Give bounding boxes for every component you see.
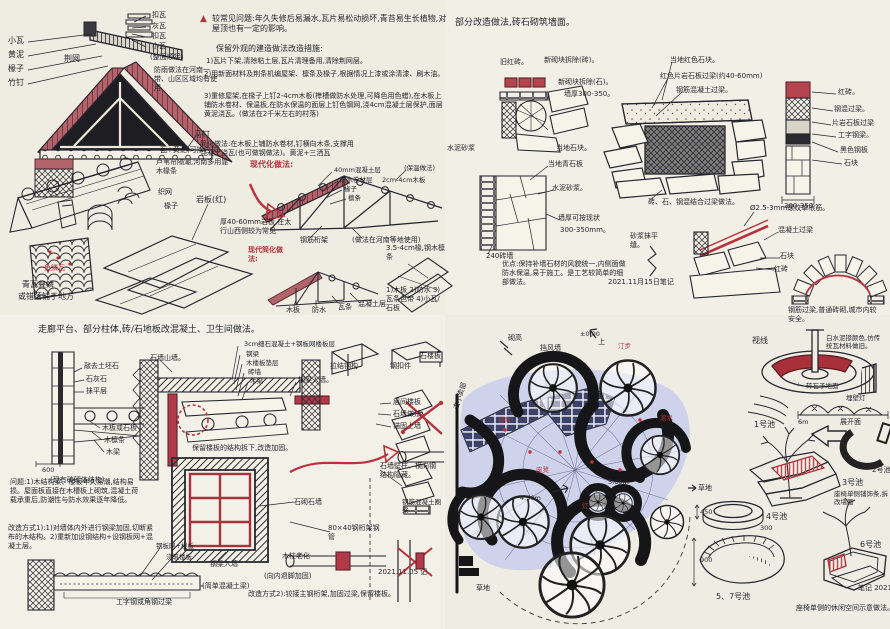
bl-heading: 走廊平台、部分柱体,砖/石地板改混凝土、卫生间做法。	[38, 325, 260, 337]
label-pm0: ±0.00	[580, 330, 600, 338]
label-maideng: 埋壁灯	[846, 394, 866, 402]
label-t2c: 瓦条	[338, 303, 352, 312]
label-jiuhong: 旧红砖。	[500, 58, 528, 67]
label-tingbu-red: 汀步	[618, 342, 631, 350]
label-top2: 钢梁	[246, 350, 259, 358]
label-heise: 黑色钢板	[840, 146, 868, 155]
label-pianyan2: 片岩石板过梁	[832, 119, 874, 128]
label-t1f: (保温做法)	[404, 164, 435, 172]
label-shiqi2: 石砌石墙	[294, 498, 322, 507]
landscape-plan-drawing	[452, 329, 890, 624]
label-top4: 砖墙	[248, 368, 261, 376]
label-huangni: 黄泥	[8, 50, 24, 60]
label-m6: 6m	[798, 418, 808, 426]
label-t1e: 檩条	[348, 194, 361, 202]
label-shajiang: 砂浆抹平缝。	[630, 232, 666, 250]
label-shunjie: (整面顺接)	[150, 53, 183, 62]
label-zhiwang: 织网	[158, 188, 172, 197]
label-luowen: Ø2.5-3mm螺纹单根筋。	[750, 204, 829, 213]
label-xiaowa2: 小瓦	[152, 42, 166, 51]
label-t2a: 木板	[286, 306, 300, 315]
bl-gaizao-note: 改造方式1):1)对墙体内外进行钢梁加固,切断紧布的木结构。2)重新加设钢结构+…	[8, 524, 158, 551]
label-taijie-red: 台阶	[498, 416, 511, 424]
label-xiandai-red: 现代化做法:	[250, 160, 293, 170]
label-suishi: 碎石子地面	[806, 382, 839, 390]
label-dangdi-h: 当地红色石块。	[670, 56, 719, 65]
label-muliang: 木梁	[106, 448, 120, 457]
bl-wenti-note: 问题:1)木结构梁、楼板年久易潮,结构易损。屋面板直接在木槽板上砌筑,混凝土荷载…	[10, 478, 142, 505]
label-xinqi-z: 新砌块拆除(砖)。	[544, 56, 598, 65]
label-chi3: 3号池	[842, 478, 863, 488]
label-yanban-note: 厚40-60mm岩板,在太行山西侧较为常见	[220, 218, 294, 236]
label-t1a: 40mm混凝土层	[334, 166, 381, 174]
label-qiaoqu: 敲去土坯石	[84, 362, 119, 371]
label-r3: 锚固上墙	[393, 422, 421, 431]
label-chuanzi: 椽子	[8, 64, 24, 74]
label-top1: 3cm细石混凝土+钢板网楼板层	[244, 340, 335, 348]
label-gunshui-red: 滚水	[660, 414, 673, 422]
tl-heading: 较常见问题:年久失修后易漏水,瓦片易松动损坏,青苔易生长植物,对屋顶也有一定的影…	[212, 14, 448, 35]
label-m45: 4.50m	[520, 494, 541, 502]
label-ghj: 80×40钢桁架钢管	[328, 524, 384, 542]
label-m5: 5.00m	[608, 478, 629, 486]
tl-item-1: 1)瓦片下架,清除粘土层,瓦片清理备用,清除荆网层。	[206, 57, 446, 66]
label-pianyan: 红色片岩石板过梁(约40-60mm)	[660, 72, 762, 81]
label-zhankai: 展开面	[840, 418, 861, 427]
label-muzhu: 木柱老化	[282, 552, 310, 561]
label-gjgl: 钢筋过梁,普通砖砌,城市内较安全。	[788, 306, 878, 324]
label-mulin: 木檩条	[104, 436, 125, 445]
label-diejiang1: 青瓦叠鳞	[22, 280, 54, 290]
tl-item-3: 3)重修屋架,在椽子上钉2-4cm木板(榫槽做防水处理,可降色用色蜡),在木板上…	[204, 92, 446, 119]
label-chi6: 6号池	[860, 540, 881, 550]
label-jd-liang: (简单混凝土梁)	[202, 582, 249, 591]
label-luwei: 芦苇帘隔潮,河南多用靠木椽条	[156, 158, 232, 176]
label-jingwang: 荆网	[64, 54, 80, 64]
label-baoliu: 保留楼板的结构拆下,改造加固。	[192, 444, 300, 453]
label-caodi: 草地	[698, 484, 712, 493]
label-bizhu: 石墙壁柱、横向钢结构隐藏。	[380, 462, 442, 480]
label-jzlb: 浇筑楼板	[166, 553, 192, 561]
br-date: 笔记 2021.	[858, 584, 890, 593]
label-chi57: 5、7号池	[716, 592, 750, 602]
label-dangdi-s: 当地石块。	[556, 144, 591, 153]
label-hnt: 混凝土过梁	[778, 226, 813, 235]
label-chuan34: 3.5-4cm椽,钢木檩条	[386, 244, 446, 262]
label-zuoyi: 座椅单侧铺饰条,拆改墙面	[834, 490, 890, 507]
label-top3: 木楼板垫层	[246, 359, 279, 367]
label-t1d: 椽子	[344, 185, 357, 193]
label-jianhua-red: 现代简化做法:	[248, 246, 292, 264]
label-caodi2: 草地	[476, 584, 490, 593]
label-tuijiao: (向内退脚加固)	[264, 572, 311, 581]
label-gongzi: 工字钢梁。	[838, 131, 873, 140]
label-qianghou: 墙厚300-350。	[564, 90, 614, 99]
label-dim600: 600	[42, 466, 54, 474]
label-bai: 白水泥掺颜色,仿传统瓦材料做旧。	[826, 334, 886, 351]
label-muban: 木板或石板	[102, 424, 137, 433]
label-gongzi2: 工字钢或角钢过梁	[116, 598, 172, 607]
label-glrq2: 钢梁入墙	[210, 560, 238, 569]
label-kouwa2: 扣瓦	[152, 32, 166, 41]
label-shikuai2: 石块	[780, 252, 794, 261]
bl-date: 2021.11.05 记	[378, 568, 427, 577]
warning-triangle-icon: ▲	[200, 14, 207, 26]
tr-heading: 部分改造做法,砖石砌筑墙面。	[455, 18, 575, 30]
label-shuini2: 水泥砂浆。	[552, 184, 587, 193]
label-ganghun2: 钢混过梁。	[834, 105, 869, 114]
label-gwlb: 钢板网+楼板	[156, 542, 194, 550]
label-kouwa: 扣瓦	[152, 11, 166, 20]
label-dangfeng: 挡风墙	[540, 344, 561, 353]
label-xiaowa: 小瓦	[8, 36, 24, 46]
label-hongzhuan: 红砖。	[838, 88, 859, 97]
label-zsg: 砖、石、钢混结合过梁做法。	[648, 198, 739, 207]
label-diejiang2: 或错落铺于地方	[18, 292, 74, 302]
sketchbook-page: ▲ 较常见问题:年久失修后易漏水,瓦片易松动损坏,青苔易生长植物,对屋顶也有一定…	[0, 0, 890, 629]
label-chuanzi2: 椽子	[164, 202, 178, 211]
label-wa-huangni: 瓦+黄泥(可掺白灰)	[160, 146, 220, 155]
label-huiwa: 灰瓦	[152, 22, 166, 31]
label-xinqi-s: 新砌块拆除(石)。	[558, 78, 612, 87]
tl-subheading: 保留外观的建造做法改造措施:	[216, 44, 323, 54]
label-shang: 上	[598, 338, 605, 347]
label-hongzhuan2: 红砖	[774, 265, 788, 274]
label-lajie: 拉结钢构	[330, 362, 358, 371]
label-t1b: 防水卷材层	[340, 176, 373, 184]
label-quanliang: 钢筋混凝土圈梁	[402, 498, 444, 515]
tl-note-fangyu: 防雨做法在河南一带、山区区域均有使用	[154, 66, 220, 93]
label-glrq: 钢梁入墙。	[298, 376, 333, 385]
label-t1c: 2cm-4cm木板	[382, 176, 425, 184]
label-qigao: 砌高	[508, 334, 522, 343]
label-top5: 木梁	[250, 377, 263, 385]
label-chi2: 2号池	[872, 466, 890, 475]
label-ganghun: 钢筋混凝土过梁。	[676, 86, 732, 95]
label-t2d: 混凝土层	[358, 300, 386, 309]
label-listR: 1)木板 2)防水 3)瓦条色带 4)小瓦/石板	[386, 286, 444, 313]
label-r2: 石墙做法	[393, 410, 421, 419]
label-r1: 层间楼板	[393, 398, 421, 407]
label-qingshi: 当地青石板	[548, 160, 583, 169]
label-qh2b: 300-350mm。	[560, 226, 610, 235]
label-dim900: 900	[700, 556, 712, 564]
label-fangshi2: 改造方式2):铰接主钢桁架,加固过梁,保留楼板。	[248, 590, 408, 599]
label-shikuai: 石块	[844, 159, 858, 168]
label-chi4: 4号池	[766, 512, 787, 522]
label-t2b: 防水	[312, 306, 326, 315]
label-shiqiang: 石墙山墙。	[150, 354, 185, 363]
label-shihui: 石灰石	[86, 375, 107, 384]
label-zuodeng-red: 座凳	[536, 466, 549, 474]
label-gkj: 钢扣件	[390, 362, 411, 371]
label-mading: 马钉	[194, 130, 210, 140]
label-slb: 石楼板	[420, 352, 441, 361]
label-moping: 抹平层	[86, 387, 107, 396]
label-shuini: 水泥砂浆	[447, 144, 475, 153]
label-xiuxian: 座椅单侧的休闲空间示意做法。	[796, 604, 890, 613]
label-zhuding: 竹钉	[8, 78, 24, 88]
label-yulin-red: 鱼鳞瓦	[44, 264, 65, 273]
label-qh2a: 墙厚可按现状	[558, 214, 600, 223]
tr-date: 2021.11月15日笔记	[608, 278, 684, 287]
label-yanban: 岩板(红)	[196, 195, 226, 205]
label-gangjin: 钢筋桁架	[300, 236, 328, 245]
label-dim450: 450	[700, 508, 712, 516]
label-chi1: 1号池	[754, 420, 775, 430]
label-deng-red: 灯	[582, 502, 589, 510]
label-shixian: 视线	[752, 336, 768, 346]
tl-item-2: 2)用新面材料及荆条机编屋架、檩条及椽子,根据情况上漆或涂清漆、刷木油。	[204, 70, 446, 79]
label-dim300: 300	[760, 524, 772, 532]
tl-item-4: 简化做法:在木板上铺防水卷材,钉横向木条,支撑用混凝土浇瓦(也可做钢做法)。黄泥…	[200, 140, 360, 158]
